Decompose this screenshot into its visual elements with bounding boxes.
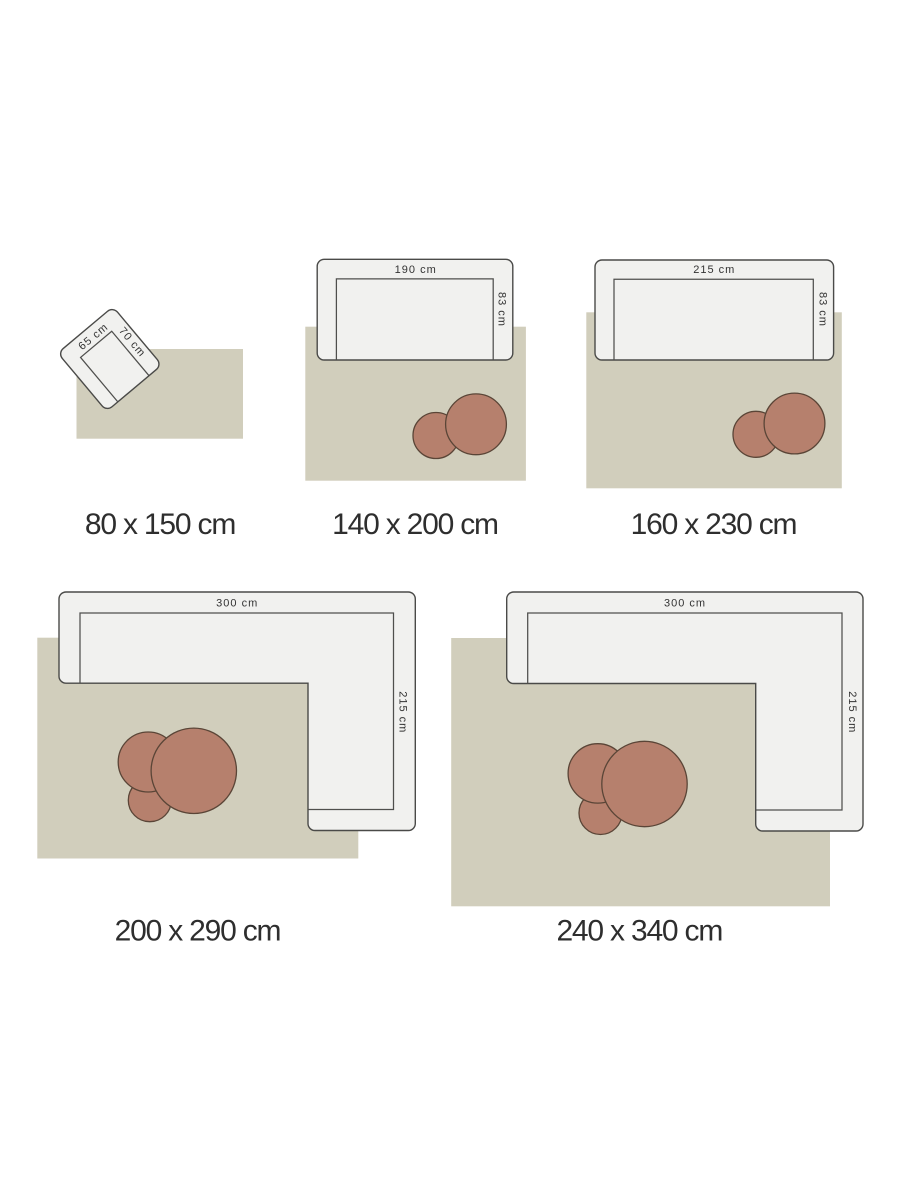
svg-text:83 cm: 83 cm	[496, 292, 508, 327]
svg-text:300 cm: 300 cm	[664, 598, 706, 610]
svg-text:215 cm: 215 cm	[397, 691, 409, 733]
svg-text:215 cm: 215 cm	[846, 691, 858, 733]
svg-text:160 x 230 cm: 160 x 230 cm	[631, 508, 797, 541]
svg-text:140 x 200 cm: 140 x 200 cm	[332, 508, 498, 541]
svg-text:215 cm: 215 cm	[693, 264, 735, 276]
svg-text:240 x 340 cm: 240 x 340 cm	[556, 914, 722, 947]
svg-text:80 x 150 cm: 80 x 150 cm	[85, 508, 235, 541]
svg-text:300 cm: 300 cm	[216, 598, 258, 610]
svg-text:200 x 290 cm: 200 x 290 cm	[115, 914, 281, 947]
svg-text:190 cm: 190 cm	[395, 264, 437, 276]
svg-text:83 cm: 83 cm	[817, 292, 829, 327]
